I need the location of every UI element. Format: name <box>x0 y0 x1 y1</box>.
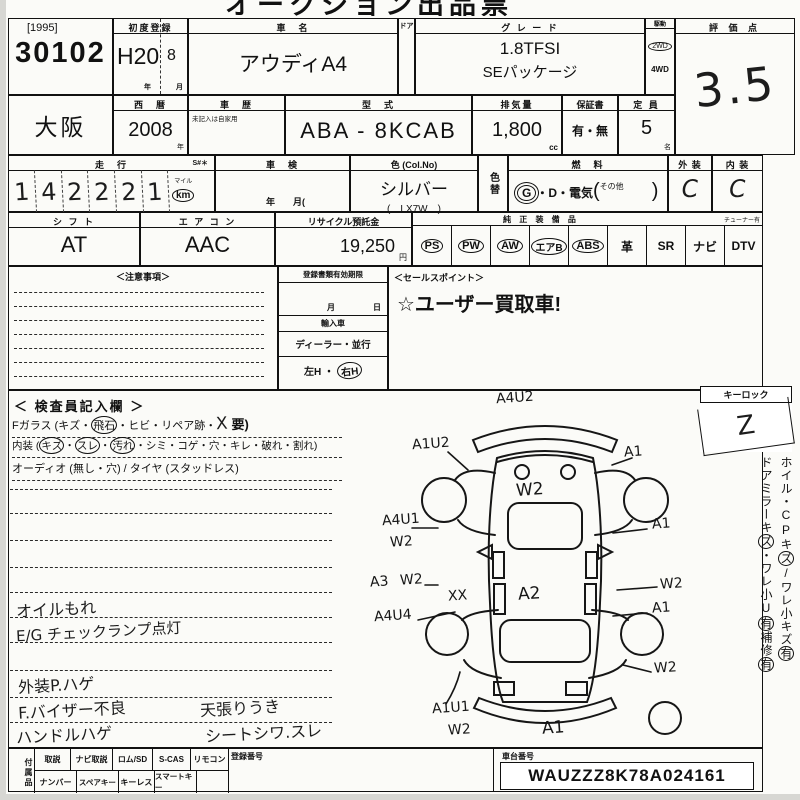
equipment-item: PS <box>413 226 452 266</box>
car-name-value: アウディA4 <box>189 34 397 92</box>
accessories-table: 付属品 取説 ナビ取説 ロム/SD S-CAS リモコン ナンバー スペアキー … <box>8 748 494 792</box>
chassis-value: WAUZZZ8K78A024161 <box>500 762 754 790</box>
damage-mark: A1 <box>651 599 671 616</box>
lot-number: 30102 <box>9 37 112 70</box>
fuel-gas-selected: G <box>517 185 536 201</box>
shaken-label: 車 検 <box>216 156 349 171</box>
registration-handle-right-selected: 右H <box>336 361 363 381</box>
mileage-digit: 1 <box>8 170 37 213</box>
interior-cell: 内 装 C <box>712 155 763 212</box>
equipment-tuner-note: チューナー有 <box>724 215 760 224</box>
equipment-item: 革 <box>608 226 647 266</box>
damage-mark: A3 <box>369 573 389 590</box>
history-cell: 車 歴 未記入は自家用 <box>188 95 285 155</box>
accessory-cell: 取説 <box>35 749 71 770</box>
displacement-cell: 排気量 1,800 cc <box>472 95 562 155</box>
registration-handle-separator: ・ <box>324 367 334 378</box>
inspector-title: ＜ 検査員記入欄 ＞ <box>14 396 145 415</box>
location-value: 大阪 <box>9 96 112 154</box>
writing-line <box>10 642 332 643</box>
color-change-label: 色替 <box>486 156 501 211</box>
sidebar-vertical-notes: ホイル・CPキズ/ワレ小キズ有 ドアミラーキズ・ワレ小U有補修有 <box>752 456 796 762</box>
first-registration-year-unit: 年 <box>144 82 151 92</box>
chassis-label: 車台番号 <box>494 749 762 762</box>
writing-line <box>14 362 264 363</box>
damage-mark: W2 <box>447 721 471 739</box>
damage-mark: A1 <box>651 515 671 532</box>
fuel-other: その他 <box>600 182 624 191</box>
sales-point-box: ＜セールスポイント＞ ☆ユーザー買取車! <box>388 266 763 390</box>
mileage-unit-badge: マイル km <box>172 176 194 203</box>
grade-label: グ レ ー ド <box>416 19 644 34</box>
accessory-cell-empty <box>197 771 229 793</box>
model-code-label: 型 式 <box>286 96 471 111</box>
mileage-unit-small: マイル <box>172 176 194 185</box>
writing-line <box>14 306 264 307</box>
scan-margin-bottom <box>0 794 800 800</box>
keylock-box: キーロック Z <box>700 386 792 452</box>
drive-label: 駆動 <box>646 19 674 29</box>
registration-handle-left: 左H <box>304 367 321 378</box>
interior-circled-scuff: スレ <box>75 437 100 454</box>
writing-line <box>10 592 332 593</box>
accessory-cell: スマートキー <box>155 771 197 793</box>
first-registration-label: 初度登録 <box>114 19 187 34</box>
year-west-cell: 西 暦 2008 年 <box>113 95 188 155</box>
mileage-digit: 2 <box>88 170 117 213</box>
aircon-cell: エ ア コ ン AAC <box>140 212 275 266</box>
mileage-label: 走 行 S#＊ <box>9 156 214 171</box>
damage-marks-layer: A4U2A1U2A1W2A4U1W2A1A3W2XXA2W2A4U4A1W2A1… <box>370 388 750 746</box>
door-cell: ドア <box>398 18 415 95</box>
history-note: 未記入は自家用 <box>189 111 284 123</box>
equipment-label: 純 正 装 備 品 <box>503 214 579 225</box>
writing-line <box>14 320 264 321</box>
scan-margin-left <box>0 0 6 800</box>
damage-mark: W2 <box>659 575 683 593</box>
damage-mark: A2 <box>517 583 541 605</box>
damage-mark: A1 <box>541 717 565 739</box>
car-name-cell: 車 名 アウディA4 <box>188 18 398 95</box>
lot-year: [1995] <box>27 22 58 34</box>
equipment-item: AW <box>491 226 530 266</box>
capacity-label: 定 員 <box>619 96 674 111</box>
model-code-value: ABA - 8KCAB <box>286 111 471 151</box>
accessory-cell: スペアキー <box>77 771 119 793</box>
hand-note: 外装P.ハゲ <box>17 670 94 698</box>
lot-cell: [1995] 30102 <box>8 18 113 95</box>
drive-4wd: 4WD <box>646 65 674 74</box>
sheet-title-clipped: オークション出品票 <box>225 0 575 16</box>
aircon-label: エ ア コ ン <box>141 213 274 228</box>
shift-cell: シ フ ト AT <box>8 212 140 266</box>
equipment-item: SR <box>647 226 686 266</box>
writing-line <box>14 376 264 377</box>
damage-mark: W2 <box>399 571 423 589</box>
interior-circled-dirt: 汚れ <box>110 437 135 454</box>
shaken-cell: 車 検 年 月( <box>215 155 350 212</box>
damage-mark: W2 <box>389 533 413 551</box>
equipment-item: DTV <box>725 226 762 266</box>
year-west-unit: 年 <box>177 142 184 152</box>
mileage-unit: km <box>172 189 194 202</box>
aircon-value: AAC <box>141 228 274 262</box>
mileage-digit: 2 <box>115 170 144 213</box>
grade-line2: SEパッケージ <box>416 61 644 82</box>
first-registration-divider <box>160 19 161 94</box>
writing-line <box>10 697 332 698</box>
damage-mark: A4U4 <box>373 607 412 626</box>
capacity-value: 5 <box>619 117 674 140</box>
recycle-cell: リサイクル預託金 19,250 円 <box>275 212 412 266</box>
displacement-unit: cc <box>549 143 558 152</box>
score-cell: 評 価 点 3.5 <box>675 18 795 155</box>
writing-line <box>10 540 332 541</box>
accessory-cell: ナンバー <box>35 771 77 793</box>
interior-check-line: 内装 (キズ・スレ・汚れ・シミ・コゲ・穴・キレ・破れ・割れ) <box>12 437 342 458</box>
accessory-cell: リモコン <box>191 749 229 770</box>
damage-mark: A1U2 <box>411 435 450 454</box>
color-label: 色 (Col.No) <box>351 156 477 171</box>
interior-label: 内 装 <box>713 156 762 171</box>
equipment-item: エアB <box>530 226 569 266</box>
shift-value: AT <box>9 228 139 262</box>
writing-line <box>14 334 264 335</box>
damage-mark: A1U1 <box>431 699 470 718</box>
damage-mark: A4U2 <box>495 389 534 408</box>
fuel-cell: 燃 料 G・D・電気(その他) <box>508 155 668 212</box>
displacement-value: 1,800 <box>473 119 561 142</box>
fuel-label: 燃 料 <box>509 156 667 171</box>
color-change-cell: 色替 <box>478 155 508 212</box>
accessory-cell: S-CAS <box>153 749 191 770</box>
location-cell: 大阪 <box>8 95 113 155</box>
mileage-digit: 1 <box>141 170 170 213</box>
door-label: ドア <box>399 19 414 31</box>
caution-box: ＜注意事項＞ <box>8 266 278 390</box>
writing-line <box>14 348 264 349</box>
sidebar-note-wheel: ホイル・CPキズ/ワレ小キズ有 <box>776 456 796 762</box>
writing-line <box>10 513 332 514</box>
color-value: シルバー <box>351 175 477 200</box>
writing-line <box>10 617 332 618</box>
sheet-title-text: オークション出品票 <box>225 0 575 16</box>
registration-import-options: ディーラー・並行 <box>279 332 387 357</box>
capacity-cell: 定 員 5 名 <box>618 95 675 155</box>
mileage-digits: 1 4 2 2 2 1 <box>9 171 169 213</box>
interior-circled-scratch: キズ <box>39 437 64 454</box>
exterior-label: 外 装 <box>669 156 711 171</box>
year-west-label: 西 暦 <box>114 96 187 111</box>
model-code-cell: 型 式 ABA - 8KCAB <box>285 95 472 155</box>
damage-mark: A1 <box>623 443 643 460</box>
registration-box: 登録書類有効期限 月 日 輸入車 ディーラー・並行 左H ・ 右H <box>278 266 388 390</box>
history-label: 車 歴 <box>189 96 284 111</box>
registration-month-unit: 月 <box>327 302 335 313</box>
chassis-area: 車台番号 WAUZZZ8K78A024161 <box>494 748 763 792</box>
first-registration-month: 8 <box>167 47 176 65</box>
exterior-value: C <box>668 170 712 208</box>
grade-cell: グ レ ー ド 1.8TFSI SEパッケージ <box>415 18 645 95</box>
year-west-value: 2008 <box>114 119 187 142</box>
accessory-cell: キーレス <box>119 771 155 793</box>
score-value: 3.5 <box>671 28 799 145</box>
warranty-cell: 保証書 有・無 <box>562 95 618 155</box>
registration-day-unit: 日 <box>373 302 381 313</box>
drive-cell: 駆動 2WD 4WD <box>645 18 675 95</box>
accessory-cell: ナビ取説 <box>71 749 113 770</box>
caution-label: ＜注意事項＞ <box>9 267 277 283</box>
equipment-item: ABS <box>569 226 608 266</box>
accessories-label: 付属品 <box>9 749 35 793</box>
damage-mark: W2 <box>653 659 677 677</box>
displacement-label: 排気量 <box>473 96 561 111</box>
recycle-unit: 円 <box>399 252 407 263</box>
sales-point-value: ☆ユーザー買取車! <box>389 284 762 317</box>
first-registration-era: H20 <box>117 43 159 70</box>
writing-line <box>10 670 332 671</box>
glass-hand-x: X <box>216 414 229 435</box>
grade-line1: 1.8TFSI <box>416 39 644 59</box>
fuel-paren-open: ( <box>593 180 600 202</box>
writing-line <box>10 567 332 568</box>
car-damage-diagram: A4U2A1U2A1W2A4U1W2A1A3W2XXA2W2A4U4A1W2A1… <box>370 388 750 746</box>
interior-value: C <box>712 170 763 209</box>
exterior-cell: 外 装 C <box>668 155 712 212</box>
writing-line <box>10 722 332 723</box>
damage-mark: XX <box>447 587 467 604</box>
writing-line <box>10 489 332 490</box>
warranty-label: 保証書 <box>563 96 617 111</box>
car-name-label: 車 名 <box>189 19 397 34</box>
registration-expiry-label: 登録書類有効期限 <box>279 267 387 283</box>
first-registration-cell: 初度登録 H20 8 年 月 <box>113 18 188 95</box>
fuel-paren-close: ) <box>652 180 659 202</box>
accessory-cell: ロム/SD <box>113 749 153 770</box>
equipment-item: ナビ <box>686 226 725 266</box>
damage-mark: W2 <box>515 479 544 501</box>
capacity-unit: 名 <box>664 142 671 152</box>
equipment-item: PW <box>452 226 491 266</box>
hand-note: ハンドルハゲ <box>15 720 112 749</box>
keylock-mark: Z <box>697 397 795 456</box>
damage-mark: A4U1 <box>381 511 420 530</box>
recycle-value: 19,250 <box>276 236 411 257</box>
sales-point-label: ＜セールスポイント＞ <box>389 267 762 284</box>
registration-no-label: 登録番号 <box>231 751 263 762</box>
drive-2wd-selected: 2WD <box>648 42 672 51</box>
shift-label: シ フ ト <box>9 213 139 228</box>
equipment-cell: 純 正 装 備 品 チューナー有 PS PW AW エアB ABS 革 SR ナ… <box>412 212 763 266</box>
writing-line <box>14 292 264 293</box>
glass-check-line: Fガラス (キズ・飛石・ヒビ・リペア跡・X 要) <box>12 414 342 438</box>
mileage-cell: 走 行 S#＊ 1 4 2 2 2 1 マイル km <box>8 155 215 212</box>
glass-circled-flying-stone: 飛石 <box>91 416 117 434</box>
color-cell: 色 (Col.No) シルバー ( LX7W ) <box>350 155 478 212</box>
audio-check-line: オーディオ (無し・穴) / タイヤ (スタッドレス) <box>12 460 342 481</box>
mileage-digit: 4 <box>35 170 64 213</box>
recycle-label: リサイクル預託金 <box>276 213 411 228</box>
sidebar-note-mirror: ドアミラーキズ・ワレ小U有補修有 <box>756 456 776 762</box>
shaken-units: 年 月( <box>266 195 305 208</box>
mileage-s-mark: S#＊ <box>192 158 208 168</box>
first-registration-month-unit: 月 <box>176 82 183 92</box>
warranty-value: 有・無 <box>563 111 617 149</box>
registration-import-label: 輸入車 <box>279 316 387 332</box>
fuel-middle: ・D・電気 <box>536 186 593 200</box>
mileage-digit: 2 <box>61 170 90 213</box>
